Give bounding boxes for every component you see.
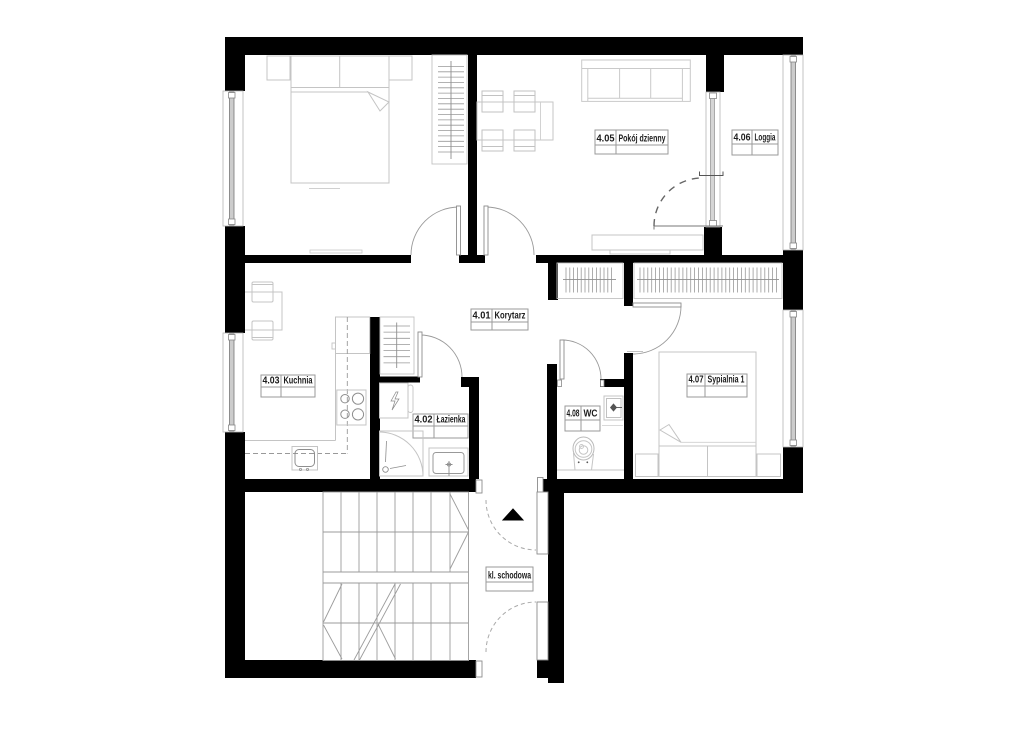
svg-text:Sypialnia 1: Sypialnia 1: [708, 374, 745, 386]
svg-text:Loggia: Loggia: [755, 132, 776, 144]
svg-text:4.03: 4.03: [263, 375, 280, 387]
svg-text:Pokój dzienny: Pokój dzienny: [619, 133, 666, 145]
svg-text:Kuchnia: Kuchnia: [284, 375, 313, 387]
svg-text:4.02: 4.02: [415, 414, 433, 426]
svg-text:Korytarz: Korytarz: [495, 310, 526, 322]
svg-text:4.05: 4.05: [597, 133, 615, 145]
svg-text:4.01: 4.01: [473, 310, 491, 322]
svg-text:Łazienka: Łazienka: [437, 414, 466, 426]
svg-text:4.07: 4.07: [689, 374, 704, 386]
svg-text:4.08: 4.08: [567, 408, 580, 420]
svg-text:kl. schodowa: kl. schodowa: [488, 571, 531, 582]
svg-text:4.06: 4.06: [734, 132, 751, 144]
svg-text:WC: WC: [584, 408, 598, 420]
